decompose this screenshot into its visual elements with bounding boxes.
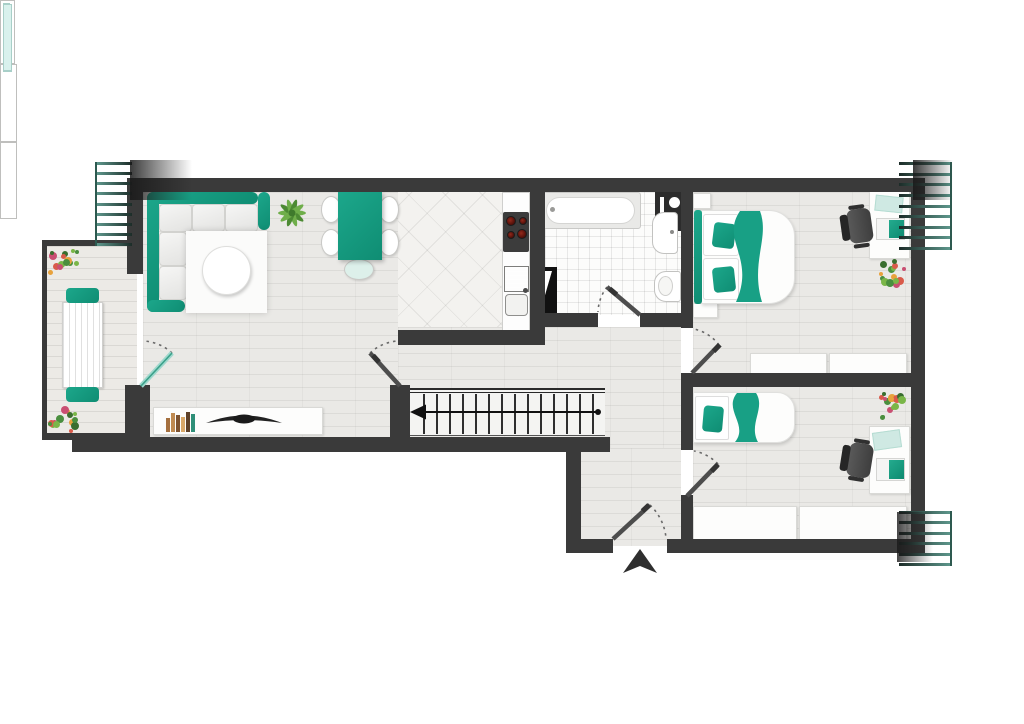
sofa-arm-right — [258, 192, 270, 230]
flowers — [879, 258, 907, 290]
sofa-cushion — [192, 204, 225, 232]
flower-dot — [72, 417, 78, 423]
sofa-cushion — [225, 204, 258, 232]
shutter-top-left — [95, 162, 132, 246]
shutter-line — [899, 542, 950, 545]
books — [166, 412, 196, 432]
wardrobe — [750, 353, 827, 375]
bed-headboard — [694, 210, 702, 304]
nightstand — [693, 303, 718, 318]
dining-chair — [379, 229, 399, 256]
burner — [519, 217, 527, 225]
wall-entrance-stub — [566, 539, 613, 553]
shutter-line — [97, 233, 132, 236]
stair-tread — [436, 394, 438, 434]
shutter-line — [899, 173, 950, 176]
bathtub — [540, 192, 641, 229]
bathtub-basin — [546, 197, 635, 224]
shutter-line — [97, 192, 132, 195]
shutter-line — [899, 162, 950, 165]
dining-table — [338, 192, 382, 260]
flower-dot — [67, 412, 73, 418]
flower-dot — [880, 415, 885, 420]
book — [186, 412, 190, 432]
shutter-top-right — [899, 162, 952, 250]
dining-chair — [379, 196, 399, 223]
flower-pot — [48, 404, 81, 435]
book — [191, 414, 195, 432]
shutter-line — [97, 162, 132, 165]
sofa-cushion — [159, 266, 187, 300]
wardrobe — [829, 353, 907, 375]
flower-dot — [893, 278, 899, 284]
nightstand — [693, 193, 711, 209]
stair-tread — [579, 394, 581, 434]
shutter-line — [97, 182, 132, 185]
bedroom-2-window — [0, 142, 17, 219]
shutter-line — [899, 226, 950, 229]
shutter-line — [97, 213, 132, 216]
accent-pillow — [712, 266, 736, 293]
accent-pillow — [702, 405, 724, 433]
coffee-table — [202, 246, 251, 295]
shutter-line — [899, 563, 950, 566]
flower-dot — [48, 422, 52, 426]
wall-entrance-left — [566, 448, 581, 553]
bathtub-faucet — [550, 207, 555, 212]
staircase — [410, 388, 605, 436]
shutter-bottom-right — [899, 511, 952, 566]
wall-living-bottom — [72, 437, 610, 452]
sofa-back-left — [147, 192, 159, 312]
flower-dot — [50, 251, 54, 255]
outdoor-chair — [66, 288, 99, 303]
shutter-line — [899, 215, 950, 218]
shutter-line — [899, 236, 950, 239]
flowers — [879, 389, 907, 421]
flower-dot — [63, 259, 70, 266]
cooktop — [503, 212, 529, 252]
kitchen-sink — [505, 294, 528, 316]
flower-dot — [879, 272, 883, 276]
sofa-arm-bottom — [147, 300, 185, 312]
flower-dot — [882, 392, 886, 396]
shutter-line — [899, 205, 950, 208]
stair-tread — [527, 394, 529, 434]
office-chair — [838, 437, 878, 484]
stair-tread — [462, 394, 464, 434]
shutter-line — [97, 243, 132, 246]
flower-dot — [73, 412, 77, 416]
stair-tread — [488, 394, 490, 434]
outdoor-table — [62, 302, 103, 388]
shutter-line — [899, 553, 950, 556]
sofa-cushion — [159, 204, 192, 232]
flower-dot — [902, 267, 906, 271]
wall-corridor-lower — [681, 495, 693, 539]
shutter-line — [899, 511, 950, 514]
wall-kitchen-bottom — [398, 330, 545, 345]
toilet-bowl — [658, 276, 673, 296]
stair-rail — [410, 392, 605, 393]
laptop-screen — [889, 460, 904, 479]
book — [176, 415, 180, 432]
flower-dot — [74, 261, 79, 266]
outdoor-chair — [66, 387, 99, 402]
shutter-line — [899, 532, 950, 535]
flower-dot — [898, 396, 906, 404]
burner — [517, 229, 527, 239]
office-chair — [838, 203, 878, 250]
flower-dot — [880, 261, 887, 268]
flower-dot — [48, 270, 53, 275]
entrance-floor — [578, 448, 681, 546]
book — [171, 413, 175, 432]
stair-tread — [501, 394, 503, 434]
kitchen-faucet — [523, 288, 528, 293]
stair-tread — [514, 394, 516, 434]
stair-tread — [449, 394, 451, 434]
wardrobe — [693, 506, 797, 541]
stair-tread — [553, 394, 555, 434]
shutter-line — [899, 247, 950, 250]
shutter-line — [97, 223, 132, 226]
wall-bathroom-left — [530, 178, 545, 330]
glass — [3, 4, 12, 71]
wall-bedroom-divider — [681, 373, 925, 387]
flower-dot — [75, 250, 79, 254]
wall-balcony-lower — [125, 385, 150, 437]
stair-tread — [540, 394, 542, 434]
wall-corridor-upper — [681, 178, 693, 328]
wall-bathroom-bottom-a — [537, 313, 598, 327]
wall-stairs-left — [390, 385, 410, 439]
washbasin — [652, 212, 678, 254]
shutter-line — [97, 172, 132, 175]
shutter-line — [97, 203, 132, 206]
shutter-line — [899, 521, 950, 524]
floor-plan — [0, 0, 1024, 724]
stair-tread — [475, 394, 477, 434]
flower-dot — [71, 422, 79, 430]
flower-dot — [888, 396, 894, 402]
flower-dot — [883, 397, 887, 401]
bedroom-1-window — [0, 64, 17, 142]
shutter-line — [899, 194, 950, 197]
sofa-back-top — [147, 192, 258, 204]
entrance-arrow-icon — [623, 549, 657, 573]
wall-bathroom-bottom-b — [640, 313, 681, 327]
stair-tread — [566, 394, 568, 434]
burner — [507, 231, 515, 239]
book — [181, 417, 185, 432]
shaft-circle-mark — [669, 197, 680, 208]
sofa-cushion — [159, 232, 187, 266]
burner — [506, 216, 516, 226]
wall-bottom-right — [667, 539, 925, 553]
accent-pillow — [712, 222, 737, 249]
wardrobe — [799, 506, 907, 541]
flower-dot — [891, 405, 896, 410]
flower-pot — [48, 249, 81, 277]
shutter-line — [899, 183, 950, 186]
book — [166, 418, 170, 432]
flower-dot — [57, 264, 63, 270]
toilet — [654, 271, 681, 302]
washbasin-faucet — [670, 230, 674, 234]
dining-chair — [344, 259, 374, 280]
flower-dot — [892, 259, 897, 264]
wall-top — [128, 178, 925, 192]
stair-tread — [592, 394, 594, 434]
stair-tread — [423, 394, 425, 434]
flower-dot — [53, 421, 60, 428]
